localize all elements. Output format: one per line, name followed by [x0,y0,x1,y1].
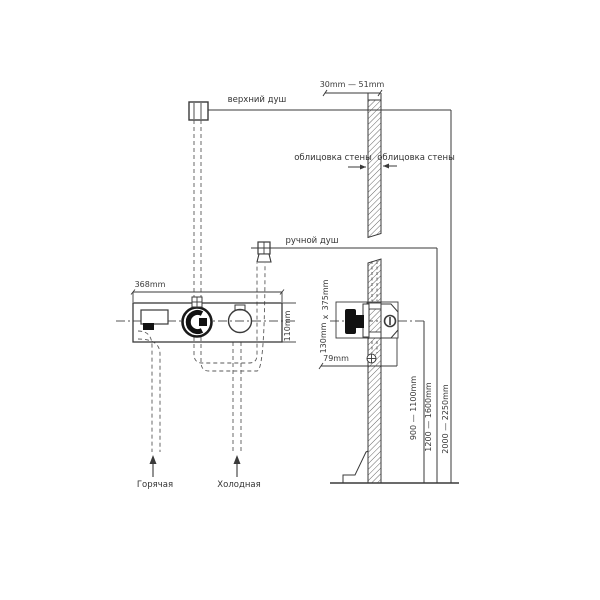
side-view-valve [319,261,398,369]
cold-supply-label: Холодная [217,481,260,490]
wall-cladding-right-label: облицовка стены [377,154,455,163]
recess-times-label: x [322,315,330,320]
wall-thickness-dim-label: 30mm — 51mm [320,81,385,89]
reference-lines [208,110,459,483]
side-view-wall [368,93,381,483]
recess-depth-dim-label: 79mm [323,355,349,363]
panel-height-dim-label: 110mm [284,311,292,342]
upper-shower-height-dim-label: 2000 — 2250mm [442,384,450,453]
hot-supply-label: Горячая [137,481,173,490]
wall-cladding-left-label: облицовка стены [294,154,372,163]
front-view [116,102,298,477]
hand-shower-label: ручной душ [285,237,338,246]
cold-arrow [234,455,241,477]
recess-width-dim-label: 130mm [320,323,328,354]
hand-shower-height-dim-label: 1200 — 1600mm [425,382,433,451]
shower-installation-diagram: верхний душ 30mm — 51mm облицовка стены … [0,0,600,600]
diagram-linework [0,0,600,600]
mixer-height-dim-label: 900 — 1100mm [410,376,418,440]
wall-thickness-dimension [323,90,382,96]
hand-shower-icon [255,242,273,262]
upper-shower-label: верхний душ [228,96,287,105]
panel-width-dim-label: 368mm [135,281,166,289]
hot-arrow [150,455,157,477]
recess-height-dim-label: 375mm [322,280,330,311]
